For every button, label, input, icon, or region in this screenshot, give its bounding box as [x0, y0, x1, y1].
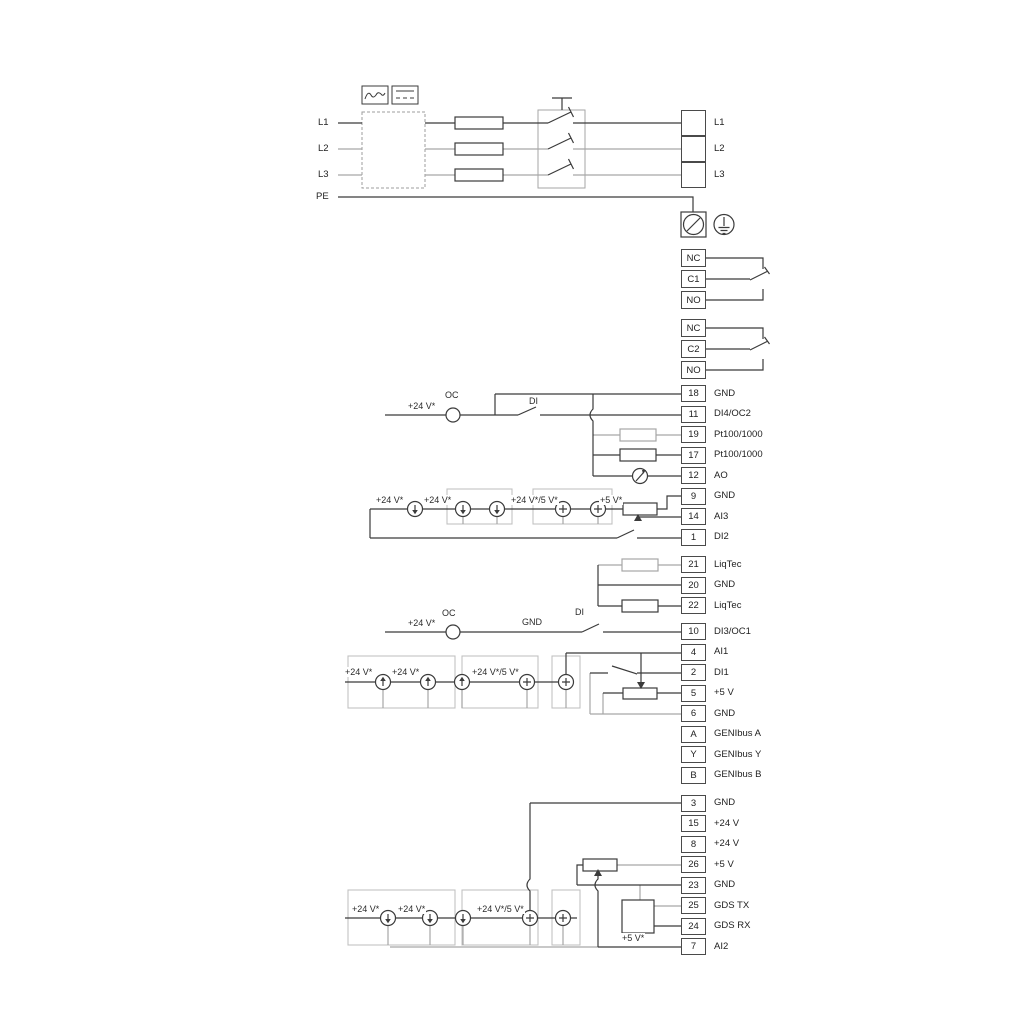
pe-wire: [338, 197, 693, 212]
terminal-cell-NO: NO: [681, 361, 706, 379]
terminal-cell-6: 6: [681, 705, 706, 722]
power-input-label: PE: [316, 191, 329, 202]
wire-label: +24 V*: [351, 904, 380, 914]
terminal-number: 9: [691, 491, 696, 502]
terminal-label: L2: [714, 143, 725, 155]
terminal-label: GENIbus A: [714, 728, 761, 740]
terminal-number: 7: [691, 941, 696, 952]
liqtec-sensor-icon: [622, 559, 658, 571]
emc-filter-box: [362, 112, 425, 188]
terminal-label: GND: [714, 879, 735, 891]
terminal-cell-3: 3: [681, 795, 706, 812]
wire-label: +24 V*: [407, 618, 436, 628]
terminal-number: 4: [691, 647, 696, 658]
terminal-cell-NO: NO: [681, 291, 706, 309]
terminal-cell-25: 25: [681, 897, 706, 914]
liqtec-sensor-icon: [622, 600, 658, 612]
terminal-number: A: [690, 729, 696, 740]
fuse-icons: [455, 117, 503, 181]
wire-label: DI: [528, 396, 539, 406]
terminal-cell-C1: C1: [681, 270, 706, 288]
diagram-graphics: [0, 0, 1024, 1024]
potentiometer-icon: [623, 503, 657, 515]
gray-wires: [338, 149, 681, 947]
fuse-icon: [455, 117, 503, 129]
terminal-label: DI4/OC2: [714, 408, 751, 420]
terminal-label: +5 V: [714, 687, 734, 699]
terminal-number: 23: [688, 880, 699, 891]
terminal-label: GENIbus Y: [714, 749, 761, 761]
terminal-number: B: [690, 770, 696, 781]
terminal-number: NO: [686, 365, 700, 376]
terminal-label: GENIbus B: [714, 769, 762, 781]
terminal-label: GDS RX: [714, 920, 750, 932]
terminal-cell-NC: NC: [681, 249, 706, 267]
terminal-cell-C2: C2: [681, 340, 706, 358]
potentiometer-icon: [583, 859, 617, 871]
terminal-cell-14: 14: [681, 508, 706, 525]
ao-meter-icon: [633, 469, 648, 484]
terminal-cell-24: 24: [681, 918, 706, 935]
terminal-number: C2: [687, 344, 699, 355]
wire-label: GND: [521, 617, 543, 627]
terminal-number: 26: [688, 859, 699, 870]
terminal-cell-19: 19: [681, 426, 706, 443]
wire-label: +24 V*/5 V*: [476, 904, 525, 914]
di-function-box: [495, 394, 681, 415]
terminal-number: 21: [688, 559, 699, 570]
terminal-cell-11: 11: [681, 406, 706, 423]
power-input-label: L3: [318, 169, 329, 180]
power-input-label: L1: [318, 117, 329, 128]
terminal-cell-17: 17: [681, 447, 706, 464]
terminal-number: 22: [688, 600, 699, 611]
terminal-cell-18: 18: [681, 385, 706, 402]
di-switch-blade: [518, 407, 536, 415]
terminal-number: 8: [691, 839, 696, 850]
terminal-number: 20: [688, 580, 699, 591]
terminal-cell-A: A: [681, 726, 706, 743]
terminal-cell-22: 22: [681, 597, 706, 614]
terminal-number: 24: [688, 921, 699, 932]
relay-blade: [750, 267, 770, 280]
terminal-cell-5: 5: [681, 685, 706, 702]
terminal-cell-23: 23: [681, 877, 706, 894]
terminal-number: 15: [688, 818, 699, 829]
wire-label: +5 V*: [599, 495, 623, 505]
gnd-bus: [590, 394, 593, 476]
open-collector-icon: [446, 625, 460, 639]
terminal-label: LiqTec: [714, 600, 741, 612]
terminal-label: GND: [714, 708, 735, 720]
wire-label: +24 V*: [397, 904, 426, 914]
terminal-label: +5 V: [714, 859, 734, 871]
terminal-label: Pt100/1000: [714, 429, 763, 441]
wire-label: +24 V*/5 V*: [510, 495, 559, 505]
terminal-number: Y: [690, 749, 696, 760]
open-collector-icon: [446, 408, 460, 422]
terminal-label: L3: [714, 169, 725, 181]
option-frames: [348, 489, 612, 945]
terminal-number: 2: [691, 667, 696, 678]
wire-label: OC: [444, 390, 460, 400]
terminal-cell-20: 20: [681, 577, 706, 594]
terminal-label: DI2: [714, 531, 729, 543]
terminal-cell-21: 21: [681, 556, 706, 573]
terminal-label: +24 V: [714, 818, 739, 830]
terminal-number: 12: [688, 470, 699, 481]
terminal-label: GND: [714, 388, 735, 400]
di-switch-blade: [617, 530, 634, 538]
terminal-label: AI3: [714, 511, 728, 523]
wire-label: +24 V*: [391, 667, 420, 677]
wire-label: +24 V*: [375, 495, 404, 505]
terminal-label: L1: [714, 117, 725, 129]
pt100-sensor-icon: [620, 429, 656, 441]
di-switch-blade: [612, 666, 637, 674]
potentiometer-icon: [623, 688, 657, 699]
terminal-label: DI3/OC1: [714, 626, 751, 638]
terminal-cell-Y: Y: [681, 746, 706, 763]
terminal-cell-1: 1: [681, 529, 706, 546]
terminal-cell-10: 10: [681, 623, 706, 640]
wire-label: +5 V*: [621, 933, 645, 943]
terminal-number: 6: [691, 708, 696, 719]
terminal-number: 17: [688, 450, 699, 461]
terminal-cell: [681, 162, 706, 188]
relay-blade: [750, 337, 770, 350]
terminal-number: 10: [688, 626, 699, 637]
terminal-label: Pt100/1000: [714, 449, 763, 461]
fuse-icon: [455, 169, 503, 181]
terminal-label: LiqTec: [714, 559, 741, 571]
potentiometers: [583, 503, 657, 871]
terminal-cell-B: B: [681, 767, 706, 784]
wire-label: +24 V*/5 V*: [471, 667, 520, 677]
terminal-label: GDS TX: [714, 900, 749, 912]
relay2-contact-wires: [706, 328, 763, 370]
terminal-label: AI1: [714, 646, 728, 658]
wire-label: +24 V*: [407, 401, 436, 411]
terminal-label: AI2: [714, 941, 728, 953]
wiring-diagram: L1L2L3NCC1NONCC2NO18GND11DI4/OC219Pt100/…: [0, 0, 1024, 1024]
terminal-number: 1: [691, 532, 696, 543]
terminal-number: 19: [688, 429, 699, 440]
terminal-cell-26: 26: [681, 856, 706, 873]
terminal-number: 18: [688, 388, 699, 399]
terminal-cell-7: 7: [681, 938, 706, 955]
terminal-label: +24 V: [714, 838, 739, 850]
terminal-cell: [681, 110, 706, 136]
terminal-label: GND: [714, 490, 735, 502]
earth-icon: [714, 215, 734, 235]
terminal-label: DI1: [714, 667, 729, 679]
terminal-number: C1: [687, 274, 699, 285]
fuse-icon: [455, 143, 503, 155]
terminal-number: 11: [689, 409, 699, 420]
source-icons: [376, 502, 606, 926]
terminal-label: GND: [714, 797, 735, 809]
terminal-number: 3: [691, 798, 696, 809]
wire-label: +24 V*: [344, 667, 373, 677]
terminal-number: 14: [688, 511, 699, 522]
terminal-number: 5: [691, 688, 696, 699]
converter-symbol-ac: [362, 86, 388, 104]
terminal-cell-15: 15: [681, 815, 706, 832]
terminal-cell-12: 12: [681, 467, 706, 484]
terminal-cell-8: 8: [681, 836, 706, 853]
wire-label: DI: [574, 607, 585, 617]
power-input-label: L2: [318, 143, 329, 154]
pe-terminal-icon: [681, 212, 706, 237]
gds-sensor-box: [622, 900, 654, 933]
terminal-number: 25: [688, 900, 699, 911]
terminal-number: NC: [687, 253, 701, 264]
terminal-cell-2: 2: [681, 664, 706, 681]
terminal-cell-NC: NC: [681, 319, 706, 337]
relay1-contact-wires: [706, 258, 763, 300]
terminal-number: NC: [687, 323, 701, 334]
pt100-sensor-icon: [620, 449, 656, 461]
terminal-cell-9: 9: [681, 488, 706, 505]
terminal-cell: [681, 136, 706, 162]
terminal-number: NO: [686, 295, 700, 306]
terminal-label: AO: [714, 470, 728, 482]
wire-label: OC: [441, 608, 457, 618]
converter-symbol-dc: [392, 86, 418, 104]
terminal-label: GND: [714, 579, 735, 591]
terminal-cell-4: 4: [681, 644, 706, 661]
di-switch-blade: [582, 624, 599, 632]
wire-label: +24 V*: [423, 495, 452, 505]
